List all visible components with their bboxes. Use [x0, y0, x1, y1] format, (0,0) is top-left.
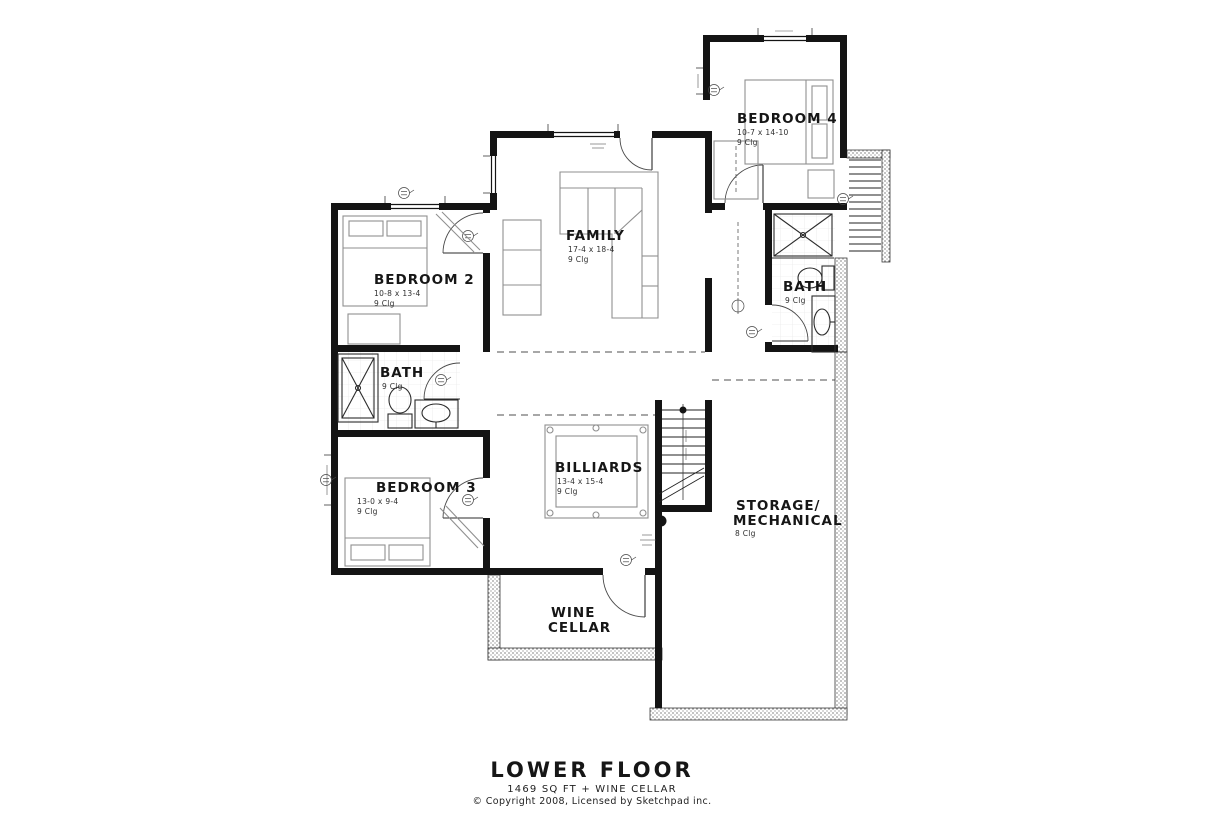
room-ceiling-billiards: 9 Clg [557, 487, 578, 496]
room-dims-bedroom3: 13-0 x 9-4 [357, 497, 398, 506]
plan-subtitle: 1469 SQ FT + WINE CELLAR [507, 784, 677, 795]
plan-copyright: © Copyright 2008, Licensed by Sketchpad … [472, 796, 711, 807]
room-label-storage-2: MECHANICAL [733, 513, 843, 529]
room-label-wine-1: WINE [551, 605, 595, 621]
room-label-bedroom4: BEDROOM 4 [737, 111, 838, 127]
room-dims-billiards: 13-4 x 15-4 [557, 477, 604, 486]
room-label-billiards: BILLIARDS [555, 460, 643, 476]
room-label-family: FAMILY [566, 228, 625, 244]
room-ceiling-storage: 8 Clg [735, 529, 756, 538]
room-label-bedroom3: BEDROOM 3 [376, 480, 477, 496]
room-dims-bedroom4: 10-7 x 14-10 [737, 128, 789, 137]
room-ceiling-bedroom4: 9 Clg [737, 138, 758, 147]
title-block: LOWER FLOOR 1469 SQ FT + WINE CELLAR © C… [472, 758, 711, 807]
room-dims-family: 17-4 x 18-4 [568, 245, 615, 254]
room-label-storage-1: STORAGE/ [736, 498, 821, 514]
room-ceiling-bath-right: 9 Clg [785, 296, 806, 305]
room-label-bath-left: BATH [380, 365, 424, 381]
staircase [659, 404, 705, 502]
room-ceiling-family: 9 Clg [568, 255, 589, 264]
beam-lines [497, 352, 835, 415]
room-ceiling-bedroom3: 9 Clg [357, 507, 378, 516]
room-label-wine-2: CELLAR [548, 620, 611, 636]
floor-plan-sheet: FAMILY 17-4 x 18-4 9 Clg BEDROOM 2 10-8 … [0, 0, 1220, 839]
room-label-bath-right: BATH [783, 279, 827, 295]
floor-plan-drawing: FAMILY 17-4 x 18-4 9 Clg BEDROOM 2 10-8 … [0, 0, 1220, 839]
room-ceiling-bath-left: 9 Clg [382, 382, 403, 391]
plan-title: LOWER FLOOR [490, 758, 693, 782]
room-label-bedroom2: BEDROOM 2 [374, 272, 475, 288]
room-ceiling-bedroom2: 9 Clg [374, 299, 395, 308]
exterior-stair-treads [849, 160, 881, 251]
room-dims-bedroom2: 10-8 x 13-4 [374, 289, 421, 298]
